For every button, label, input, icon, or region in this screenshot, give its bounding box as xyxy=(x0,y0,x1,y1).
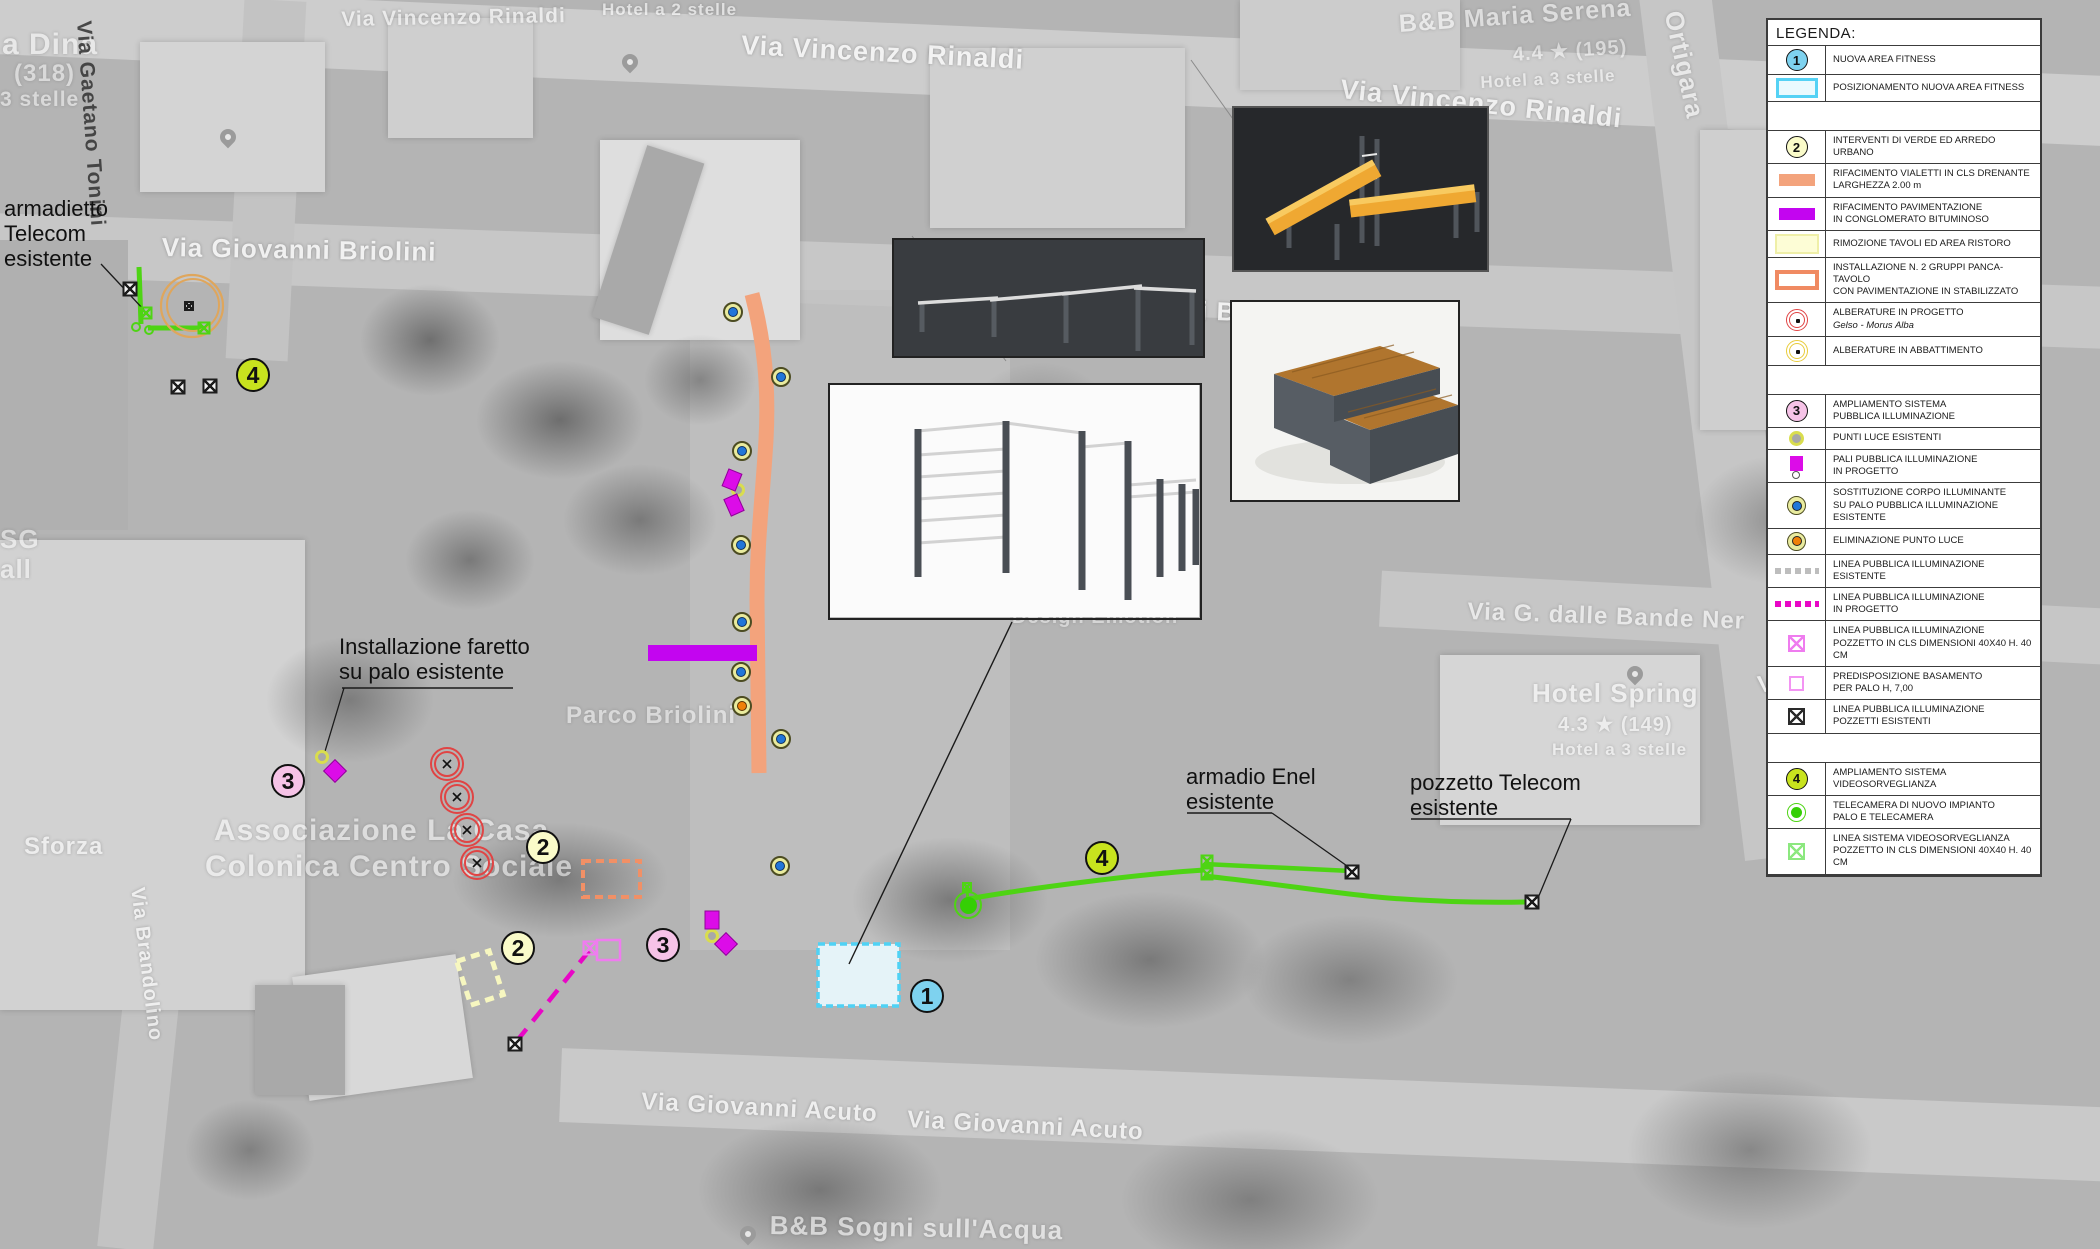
legend-symbol-cell: 2 xyxy=(1768,131,1826,163)
label-installazione-faretto: Installazione farettosu palo esistente xyxy=(339,634,530,684)
legend-row: ALBERATURE IN PROGETTOGelso - Morus Alba xyxy=(1768,302,2040,335)
legend-text: ALBERATURE IN ABBATTIMENTO xyxy=(1826,337,2040,365)
inset-render-low-bars xyxy=(892,238,1205,358)
legend-symbol-xb xyxy=(1788,635,1805,652)
legend-row: RIFACIMENTO VIALETTI IN CLS DRENANTELARG… xyxy=(1768,163,2040,196)
legend-symbol-cyr xyxy=(1776,78,1818,98)
legend-row: POSIZIONAMENTO NUOVA AREA FITNESS xyxy=(1768,74,2040,101)
legend-row: TELECAMERA DI NUOVO IMPIANTOPALO E TELEC… xyxy=(1768,795,2040,828)
legend-symbol-cell xyxy=(1768,529,1826,554)
legend-text: SOSTITUZIONE CORPO ILLUMINANTESU PALO PU… xyxy=(1826,483,2040,527)
legend-text: PALI PUBBLICA ILLUMINAZIONEIN PROGETTO xyxy=(1826,450,2040,482)
legend-symbol-xb xyxy=(1788,843,1805,860)
plan-line xyxy=(516,951,589,1042)
dot-blue-symbol xyxy=(732,441,752,461)
legend-row: LINEA PUBBLICA ILLUMINAZIONEPOZZETTI ESI… xyxy=(1768,699,2040,732)
plan-line xyxy=(1204,876,1527,902)
legend-symbol-cell xyxy=(1768,198,1826,230)
legend-row: INSTALLAZIONE N. 2 GRUPPI PANCA-TAVOLOCO… xyxy=(1768,257,2040,302)
legend-symbol-cell xyxy=(1768,829,1826,873)
dot-orange-symbol xyxy=(732,696,752,716)
legend-symbol-dot xyxy=(1787,532,1806,551)
legend-row: LINEA PUBBLICA ILLUMINAZIONEIN PROGETTO xyxy=(1768,587,2040,620)
legend-text: LINEA PUBBLICA ILLUMINAZIONEESISTENTE xyxy=(1826,555,2040,587)
inset-render-incline-benches xyxy=(1232,106,1489,272)
plan-line xyxy=(1272,813,1350,868)
label-armadio-enel: armadio Enelesistente xyxy=(1186,764,1316,814)
legend-row: PREDISPOSIZIONE BASAMENTOPER PALO H, 7,0… xyxy=(1768,666,2040,699)
numbered-badge-2: 2 xyxy=(526,830,560,864)
gring-symbol xyxy=(144,325,154,335)
legend-text: RIMOZIONE TAVOLI ED AREA RISTORO xyxy=(1826,231,2040,257)
legend-spacer xyxy=(1768,733,2040,762)
plan-line xyxy=(752,294,767,773)
xbox-black-symbol xyxy=(1525,895,1540,910)
legend-symbol-pali xyxy=(1790,456,1803,471)
legend-symbol-xb xyxy=(1788,708,1805,725)
legend-symbol-cell xyxy=(1768,796,1826,828)
numbered-badge-3: 3 xyxy=(271,764,305,798)
legend-text: POSIZIONAMENTO NUOVA AREA FITNESS xyxy=(1826,75,2040,101)
xbox-black-symbol xyxy=(203,379,218,394)
legend-text: LINEA PUBBLICA ILLUMINAZIONEPOZZETTI ESI… xyxy=(1826,700,2040,732)
legend-text: INSTALLAZIONE N. 2 GRUPPI PANCA-TAVOLOCO… xyxy=(1826,258,2040,302)
dot-blue-symbol xyxy=(770,856,790,876)
legend-symbol-dot xyxy=(1787,496,1806,515)
legend-panel: LEGENDA: 1NUOVA AREA FITNESSPOSIZIONAMEN… xyxy=(1766,18,2042,877)
legend-row: 1NUOVA AREA FITNESS xyxy=(1768,45,2040,74)
box-benches-illustration xyxy=(1232,302,1458,500)
plan-line xyxy=(443,760,451,768)
legend-text: RIFACIMENTO PAVIMENTAZIONEIN CONGLOMERAT… xyxy=(1826,198,2040,230)
legend-symbol-cell xyxy=(1768,258,1826,302)
plan-line xyxy=(597,940,620,960)
legend-text: PREDISPOSIZIONE BASAMENTOPER PALO H, 7,0… xyxy=(1826,667,2040,699)
legend-symbol-cell: 1 xyxy=(1768,46,1826,74)
plan-line xyxy=(583,861,640,897)
legend-row: RIFACIMENTO PAVIMENTAZIONEIN CONGLOMERAT… xyxy=(1768,197,2040,230)
legend-row: RIMOZIONE TAVOLI ED AREA RISTORO xyxy=(1768,230,2040,257)
legend-symbol-cell xyxy=(1768,875,1826,877)
legend-row: 2INTERVENTI DI VERDE ED ARREDO URBANO xyxy=(1768,130,2040,163)
legend-text: PUNTI LUCE ESISTENTI xyxy=(1826,428,2040,449)
inset-render-calisthenics xyxy=(828,383,1202,620)
legend-symbol-b: 2 xyxy=(1786,136,1808,158)
legend-symbol-cell xyxy=(1768,621,1826,665)
plan-line xyxy=(1204,864,1351,871)
legend-symbol-rstroke xyxy=(1775,270,1819,290)
legend-text: ELIMINAZIONE PUNTO LUCE xyxy=(1826,529,2040,554)
legend-symbol-cell: 3 xyxy=(1768,395,1826,427)
lux-symbol xyxy=(315,750,329,764)
legend-symbol-cam xyxy=(1787,803,1806,822)
legend-text: ALBERATURE IN PROGETTOGelso - Morus Alba xyxy=(1826,303,2040,335)
legend-text: TELECAMERA DI NUOVO IMPIANTOPALO E TELEC… xyxy=(1826,796,2040,828)
legend-symbol-cell: 4 xyxy=(1768,763,1826,795)
numbered-badge-1: 1 xyxy=(910,979,944,1013)
plan-line xyxy=(473,859,481,867)
legend-row: 4AMPLIAMENTO SISTEMAVIDEOSORVEGLIANZA xyxy=(1768,762,2040,795)
pali-symbol xyxy=(705,911,720,930)
legend-symbol-rfill xyxy=(1775,234,1819,254)
cam-symbol xyxy=(954,891,982,919)
plan-line xyxy=(968,870,1204,899)
legend-text: RIFACIMENTO VIALETTI IN CLS DRENANTELARG… xyxy=(1826,164,2040,196)
legend-text: LINEA SISTEMA VIDEOSORVEGLIANZAIN PROGET… xyxy=(1826,875,2040,877)
incline-benches-illustration xyxy=(1234,108,1487,270)
legend-symbol-b: 4 xyxy=(1786,768,1808,790)
legend-row: PALI PUBBLICA ILLUMINAZIONEIN PROGETTO xyxy=(1768,449,2040,482)
xbox-green-symbol xyxy=(198,322,211,335)
plan-line xyxy=(849,622,1012,964)
site-plan-canvas: a Dina(318)3 stelleVia Vincenzo RinaldiH… xyxy=(0,0,2100,1249)
legend-symbol-dash xyxy=(1775,601,1819,607)
legend-symbol-cell xyxy=(1768,164,1826,196)
legend-title: LEGENDA: xyxy=(1768,20,2040,45)
dot-blue-symbol xyxy=(771,729,791,749)
gring-symbol xyxy=(131,322,141,332)
plan-line xyxy=(457,951,504,1005)
legend-row: PUNTI LUCE ESISTENTI xyxy=(1768,427,2040,449)
legend-symbol-box xyxy=(1789,676,1804,691)
plan-line xyxy=(1538,819,1571,898)
dot-blue-symbol xyxy=(732,612,752,632)
xbox-black-symbol xyxy=(1345,865,1360,880)
xbox-black-symbol xyxy=(508,1037,523,1052)
low-bars-illustration xyxy=(894,240,1203,356)
legend-row: LINEA SISTEMA VIDEOSORVEGLIANZAPOZZETTO … xyxy=(1768,828,2040,873)
legend-symbol-bar xyxy=(1779,174,1815,186)
legend-symbol-dash xyxy=(1775,568,1819,574)
numbered-badge-4: 4 xyxy=(1085,841,1119,875)
numbered-badge-3: 3 xyxy=(646,928,680,962)
plan-line xyxy=(323,688,344,758)
legend-symbol-cell xyxy=(1768,588,1826,620)
legend-symbol-cell xyxy=(1768,75,1826,101)
legend-symbol-tree xyxy=(1786,309,1808,331)
legend-symbol-tree xyxy=(1786,340,1808,362)
inset-render-box-benches xyxy=(1230,300,1460,502)
legend-row: 3AMPLIAMENTO SISTEMAPUBBLICA ILLUMINAZIO… xyxy=(1768,394,2040,427)
plan-line xyxy=(453,793,461,801)
legend-row: ELIMINAZIONE PUNTO LUCE xyxy=(1768,528,2040,554)
xbox-green-symbol xyxy=(1201,855,1214,868)
legend-text: AMPLIAMENTO SISTEMAVIDEOSORVEGLIANZA xyxy=(1826,763,2040,795)
legend-symbol-b: 3 xyxy=(1786,400,1808,422)
legend-row: LINEA PUBBLICA ILLUMINAZIONEPOZZETTO IN … xyxy=(1768,620,2040,665)
legend-text: AMPLIAMENTO SISTEMAPUBBLICA ILLUMINAZION… xyxy=(1826,395,2040,427)
legend-symbol-cell xyxy=(1768,231,1826,257)
legend-row: ALBERATURE IN ABBATTIMENTO xyxy=(1768,336,2040,365)
legend-text: INTERVENTI DI VERDE ED ARREDO URBANO xyxy=(1826,131,2040,163)
legend-text: LINEA PUBBLICA ILLUMINAZIONEPOZZETTO IN … xyxy=(1826,621,2040,665)
xbox-green-symbol xyxy=(1201,868,1214,881)
legend-symbol-cell xyxy=(1768,450,1826,482)
plan-line xyxy=(463,826,471,834)
xbox-black-symbol xyxy=(184,301,194,311)
xbox-black-symbol xyxy=(123,282,138,297)
xbox-magenta-symbol xyxy=(583,941,598,956)
numbered-badge-2: 2 xyxy=(501,931,535,965)
legend-symbol-bar xyxy=(1779,208,1815,220)
legend-symbol-cell xyxy=(1768,700,1826,732)
dot-blue-symbol xyxy=(731,662,751,682)
legend-spacer xyxy=(1768,101,2040,130)
numbered-badge-4: 4 xyxy=(236,358,270,392)
xbox-green-symbol xyxy=(140,307,153,320)
dot-blue-symbol xyxy=(723,302,743,322)
label-pozzetto-telecom: pozzetto Telecomesistente xyxy=(1410,770,1581,820)
calisthenics-illustration xyxy=(830,385,1199,617)
legend-text: LINEA SISTEMA VIDEOSORVEGLIANZAPOZZETTO … xyxy=(1826,829,2040,873)
legend-row: SOSTITUZIONE CORPO ILLUMINANTESU PALO PU… xyxy=(1768,482,2040,527)
legend-spacer xyxy=(1768,365,2040,394)
legend-symbol-cell xyxy=(1768,337,1826,365)
legend-symbol-cell xyxy=(1768,555,1826,587)
legend-rows: 1NUOVA AREA FITNESSPOSIZIONAMENTO NUOVA … xyxy=(1768,45,2040,877)
legend-symbol-b: 1 xyxy=(1786,49,1808,71)
legend-row: LINEA SISTEMA VIDEOSORVEGLIANZAIN PROGET… xyxy=(1768,874,2040,877)
legend-text: LINEA PUBBLICA ILLUMINAZIONEIN PROGETTO xyxy=(1826,588,2040,620)
plan-line xyxy=(818,944,899,1006)
legend-text: NUOVA AREA FITNESS xyxy=(1826,46,2040,74)
dot-blue-symbol xyxy=(731,535,751,555)
legend-symbol-cell xyxy=(1768,303,1826,335)
legend-row: LINEA PUBBLICA ILLUMINAZIONEESISTENTE xyxy=(1768,554,2040,587)
legend-symbol-cell xyxy=(1768,428,1826,449)
legend-symbol-cell xyxy=(1768,667,1826,699)
legend-symbol-cell xyxy=(1768,483,1826,527)
dot-blue-symbol xyxy=(771,367,791,387)
label-armadietto-telecom: armadiettoTelecomesistente xyxy=(4,196,108,271)
xbox-black-symbol xyxy=(171,380,186,395)
legend-symbol-lux xyxy=(1789,431,1804,446)
